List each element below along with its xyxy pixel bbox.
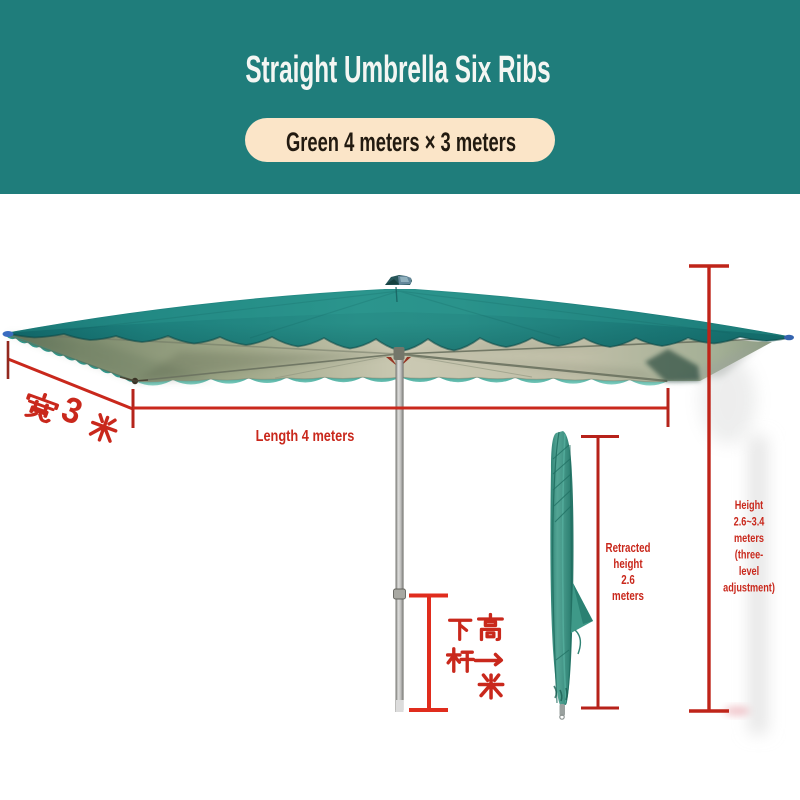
svg-text:meters: meters — [734, 532, 764, 546]
svg-text:Retracted: Retracted — [606, 542, 651, 555]
svg-text:Length 4 meters: Length 4 meters — [256, 428, 355, 446]
svg-text:3: 3 — [56, 389, 87, 432]
svg-text:meters: meters — [612, 590, 644, 603]
svg-text:2.6~3.4: 2.6~3.4 — [734, 515, 765, 529]
svg-text:height: height — [613, 558, 642, 571]
svg-text:Straight Umbrella Six Ribs: Straight Umbrella Six Ribs — [245, 47, 550, 90]
svg-text:(three-: (three- — [735, 548, 764, 562]
svg-text:adjustment): adjustment) — [723, 581, 775, 595]
svg-text:Green 4 meters × 3 meters: Green 4 meters × 3 meters — [286, 126, 516, 156]
svg-text:2.6: 2.6 — [621, 574, 635, 587]
svg-text:Height: Height — [735, 499, 764, 513]
svg-text:level: level — [739, 565, 759, 579]
